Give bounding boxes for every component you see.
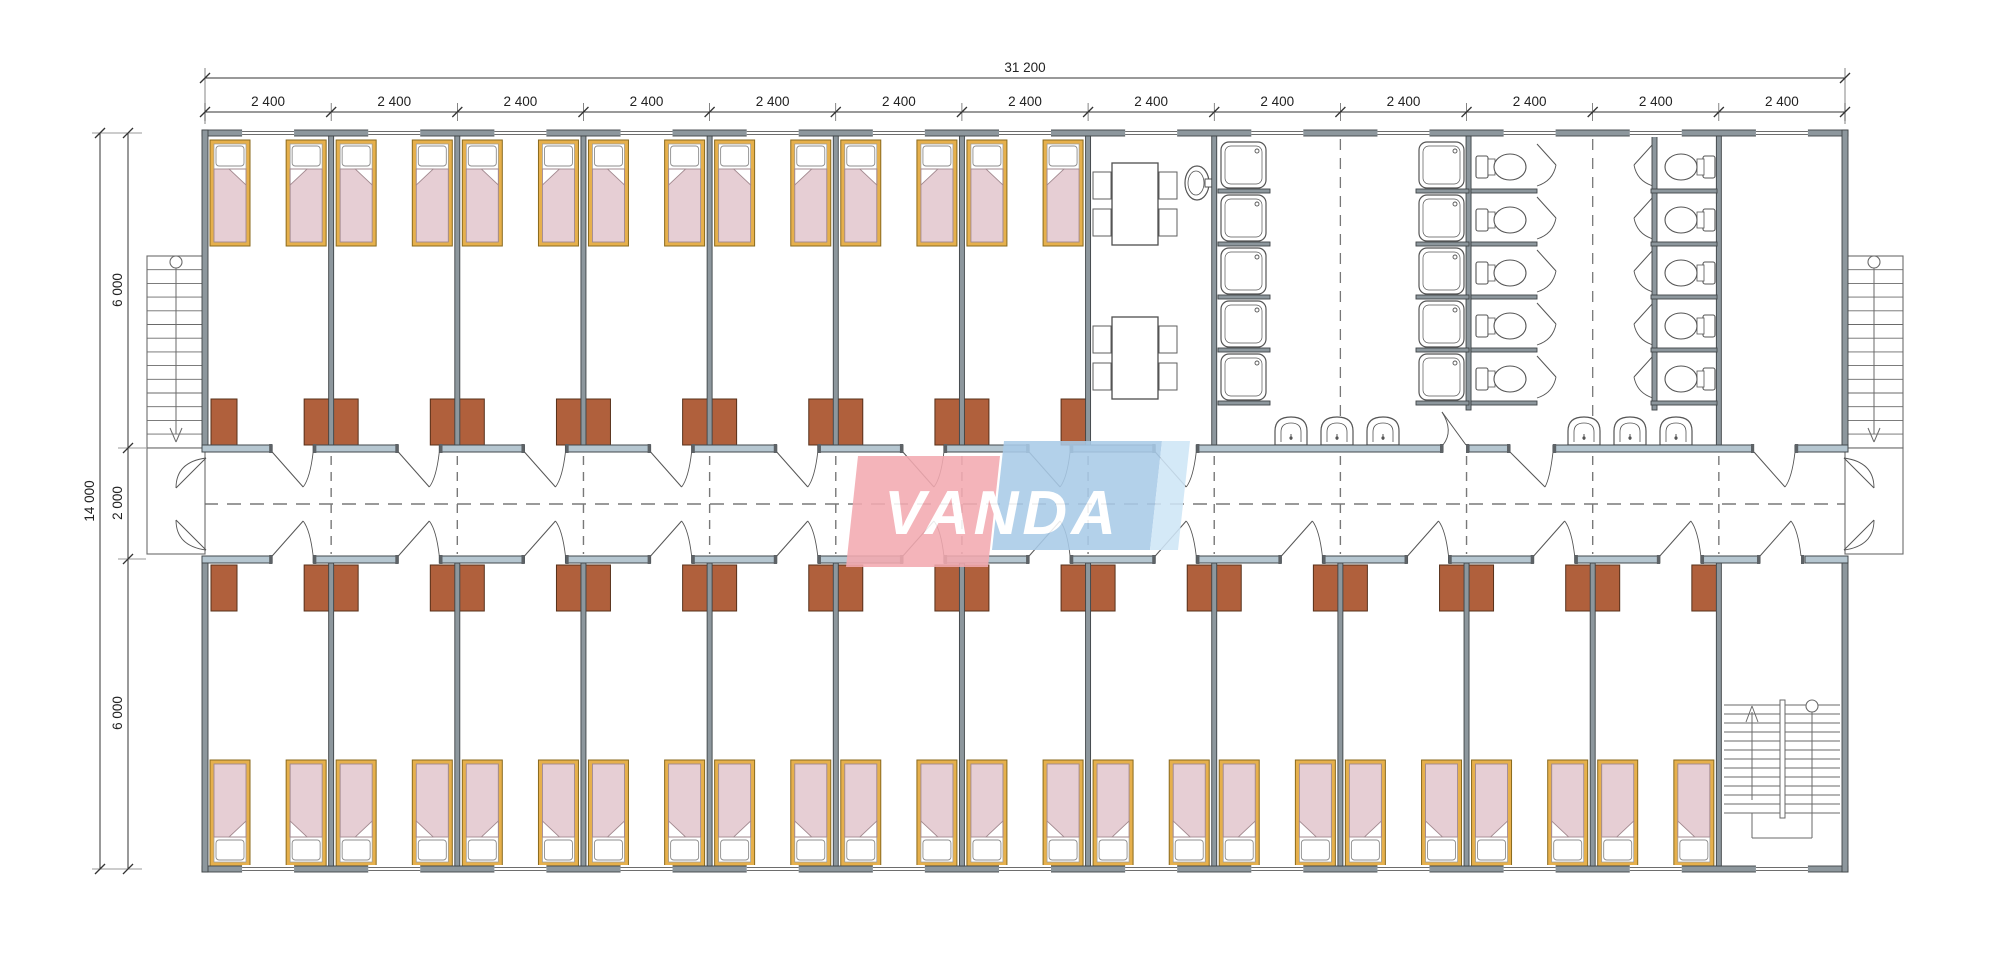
bed <box>588 140 628 246</box>
wash-basin <box>1660 417 1692 445</box>
wardrobe <box>211 399 237 445</box>
bed <box>841 760 881 866</box>
bed <box>665 140 705 246</box>
dimension-label: 2 400 <box>1260 94 1294 109</box>
wardrobe <box>683 399 709 445</box>
wardrobe <box>963 399 989 445</box>
dimension-label: 6 000 <box>110 273 125 307</box>
toilet <box>1476 356 1556 398</box>
wardrobe <box>935 399 961 445</box>
bed <box>1093 760 1133 866</box>
wardrobe <box>430 399 456 445</box>
bed <box>791 760 831 866</box>
dimension-label: 2 400 <box>377 94 411 109</box>
wardrobe <box>837 399 863 445</box>
wardrobe <box>1566 565 1592 611</box>
bed <box>412 760 452 866</box>
dimension-label: 2 400 <box>882 94 916 109</box>
wardrobe <box>711 565 737 611</box>
dining-table-group <box>1093 163 1177 245</box>
wardrobe <box>556 565 582 611</box>
toilet <box>1634 197 1715 239</box>
toilet <box>1476 144 1556 186</box>
wardrobe <box>935 565 961 611</box>
wardrobe <box>304 565 330 611</box>
bed <box>791 140 831 246</box>
bed <box>1422 760 1462 866</box>
wardrobe <box>556 399 582 445</box>
exterior-stair <box>1845 256 1903 554</box>
bed <box>1674 760 1714 866</box>
bed <box>210 760 250 866</box>
wardrobe <box>332 399 358 445</box>
shower-tray <box>1221 142 1266 188</box>
bed <box>286 140 326 246</box>
wardrobe <box>1089 565 1115 611</box>
dimension-label: 2 400 <box>251 94 285 109</box>
shower-tray <box>1221 354 1266 400</box>
wardrobe <box>711 399 737 445</box>
dimension-label: 6 000 <box>110 696 125 730</box>
toilet <box>1634 144 1715 186</box>
wardrobe <box>1187 565 1213 611</box>
bed <box>286 760 326 866</box>
bed <box>1043 140 1083 246</box>
dimension-label: 2 000 <box>110 486 125 520</box>
bed <box>665 760 705 866</box>
dimension-label: 14 000 <box>82 480 97 521</box>
wardrobe <box>430 565 456 611</box>
bed <box>967 140 1007 246</box>
wash-basin <box>1614 417 1646 445</box>
bed <box>1472 760 1512 866</box>
wardrobe <box>1594 565 1620 611</box>
dining-table-group <box>1093 317 1177 399</box>
dimension-label: 2 400 <box>503 94 537 109</box>
bed <box>1219 760 1259 866</box>
wardrobe <box>1061 399 1087 445</box>
bed <box>462 140 502 246</box>
shower-tray <box>1221 248 1266 294</box>
bed <box>538 760 578 866</box>
dimension-label: 2 400 <box>756 94 790 109</box>
dimension-label: 2 400 <box>1639 94 1673 109</box>
floor-plan-stage: 31 2002 4002 4002 4002 4002 4002 4002 40… <box>0 0 2000 977</box>
exterior-stair <box>147 256 205 554</box>
bed <box>588 760 628 866</box>
wardrobe <box>809 399 835 445</box>
bed <box>917 760 957 866</box>
wardrobe <box>1440 565 1466 611</box>
bed <box>841 140 881 246</box>
interior-stair <box>1724 700 1840 838</box>
wardrobe <box>584 399 610 445</box>
dimension-label: 2 400 <box>1765 94 1799 109</box>
dining-basin <box>1185 166 1213 200</box>
wardrobe <box>584 565 610 611</box>
bed <box>715 140 755 246</box>
bed <box>967 760 1007 866</box>
wash-basin <box>1321 417 1353 445</box>
wardrobe <box>458 399 484 445</box>
dimension-label: 31 200 <box>1004 60 1045 75</box>
shower-tray <box>1419 354 1464 400</box>
bed <box>412 140 452 246</box>
bed <box>1043 760 1083 866</box>
dimension-label: 2 400 <box>1513 94 1547 109</box>
wardrobe <box>1215 565 1241 611</box>
shower-tray <box>1221 301 1266 347</box>
logo-text: VANDA <box>884 479 1120 548</box>
dimension-label: 2 400 <box>1134 94 1168 109</box>
bed <box>1598 760 1638 866</box>
wash-basin <box>1275 417 1307 445</box>
bed <box>1345 760 1385 866</box>
bed <box>917 140 957 246</box>
shower-tray <box>1419 301 1464 347</box>
toilet <box>1476 303 1556 345</box>
wardrobe <box>211 565 237 611</box>
floor-plan-canvas: 31 2002 4002 4002 4002 4002 4002 4002 40… <box>0 0 2000 977</box>
shower-tray <box>1221 195 1266 241</box>
bed <box>538 140 578 246</box>
wardrobe <box>1313 565 1339 611</box>
wardrobe <box>683 565 709 611</box>
bed <box>1295 760 1335 866</box>
wardrobe <box>304 399 330 445</box>
bed <box>336 760 376 866</box>
bed <box>210 140 250 246</box>
toilet <box>1476 197 1556 239</box>
bed <box>715 760 755 866</box>
wardrobe <box>332 565 358 611</box>
wardrobe <box>1061 565 1087 611</box>
wardrobe <box>458 565 484 611</box>
vanda-logo: VANDA <box>846 441 1190 567</box>
toilet <box>1634 356 1715 398</box>
wash-basin <box>1568 417 1600 445</box>
shower-tray <box>1419 195 1464 241</box>
bed <box>462 760 502 866</box>
wardrobe <box>1341 565 1367 611</box>
wash-basin <box>1367 417 1399 445</box>
shower-tray <box>1419 142 1464 188</box>
wardrobe <box>837 565 863 611</box>
toilet <box>1634 303 1715 345</box>
bed <box>336 140 376 246</box>
wardrobe <box>1468 565 1494 611</box>
dimension-label: 2 400 <box>630 94 664 109</box>
wardrobe <box>809 565 835 611</box>
toilet <box>1476 250 1556 292</box>
toilet <box>1634 250 1715 292</box>
shower-tray <box>1419 248 1464 294</box>
dimension-label: 2 400 <box>1387 94 1421 109</box>
wardrobe <box>963 565 989 611</box>
dimension-label: 2 400 <box>1008 94 1042 109</box>
wardrobe <box>1692 565 1718 611</box>
bed <box>1169 760 1209 866</box>
bed <box>1548 760 1588 866</box>
